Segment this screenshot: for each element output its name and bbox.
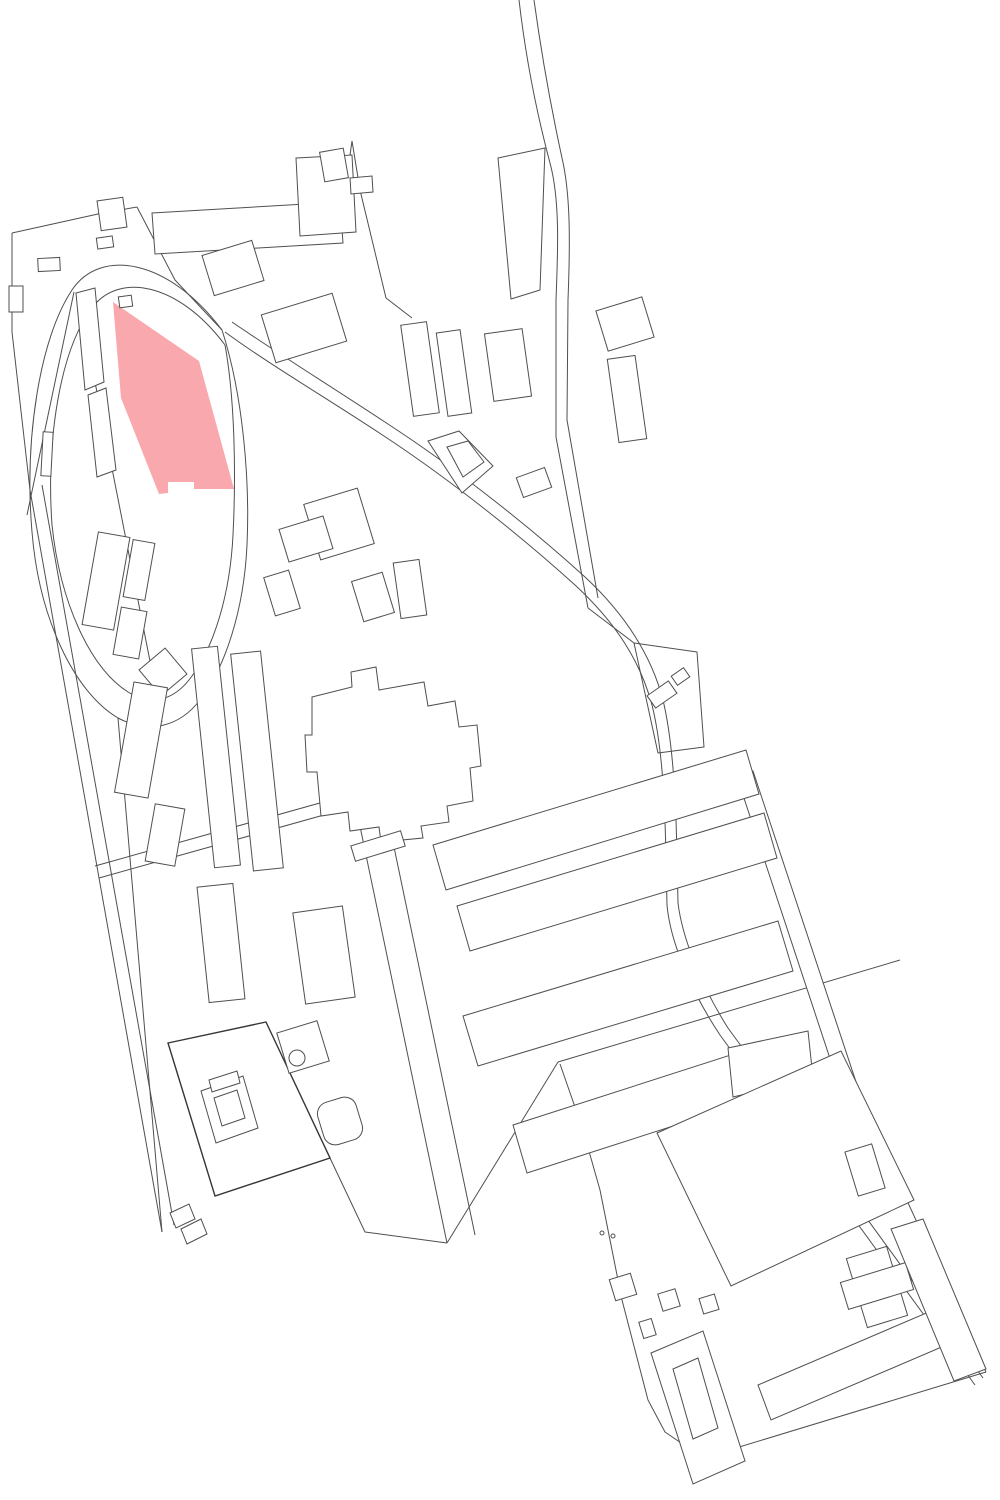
building-topcenter-slab-2 xyxy=(436,330,471,417)
building-se-square-1 xyxy=(609,1273,636,1300)
boundary-top-left-drop xyxy=(12,233,30,490)
building-topcenter-slab-1 xyxy=(401,322,440,417)
building-leftcol-4 xyxy=(115,682,168,798)
road-main-diagonal-west-edge xyxy=(225,332,975,1385)
building-central-blob xyxy=(305,667,481,842)
parcel-trapezoid-top-center xyxy=(498,148,545,299)
building-topcenter-block xyxy=(484,329,531,402)
building-se-square-4 xyxy=(639,1318,656,1338)
highlighted-parcel xyxy=(113,302,234,494)
building-topcenter-small xyxy=(320,148,349,182)
building-central-tail xyxy=(351,831,405,862)
building-midcol-slab-2 xyxy=(231,651,284,871)
building-topleft-small-3 xyxy=(9,286,23,312)
building-courtyard-circle xyxy=(289,1050,305,1066)
building-loop-strip-2 xyxy=(88,388,116,477)
building-topleft-arm xyxy=(350,176,373,194)
map-dot-2 xyxy=(611,1234,615,1238)
parcel-line-top-center-step xyxy=(352,141,412,318)
building-mid-small-2 xyxy=(393,559,427,618)
building-eastmid-stepped xyxy=(596,297,654,351)
building-eastmid-slab xyxy=(607,355,646,442)
site-plan-svg xyxy=(0,0,1000,1500)
building-roadside-small xyxy=(516,468,551,498)
building-bl-upper-2 xyxy=(293,906,355,1004)
building-loop-strip-1 xyxy=(76,288,104,390)
map-dot-1 xyxy=(600,1231,604,1235)
building-topleft-small-4 xyxy=(118,295,132,308)
road-top-curve-east-edge xyxy=(534,0,598,598)
building-topleft-small-2 xyxy=(38,257,61,271)
building-topleft-notched xyxy=(97,197,127,230)
building-bl-upper-1 xyxy=(197,883,245,1002)
building-leftcol-5 xyxy=(145,804,185,866)
building-mid-small-1 xyxy=(264,570,301,616)
building-leftcol-3 xyxy=(113,607,147,659)
building-eastparcel-small-2 xyxy=(671,668,690,686)
building-mid-small-3 xyxy=(352,572,395,622)
building-loop-north-2 xyxy=(261,293,346,362)
building-se-long-slab xyxy=(758,1311,944,1420)
building-se-square-3 xyxy=(699,1294,719,1314)
road-top-curve-west-edge xyxy=(519,0,588,608)
site-plan-map xyxy=(0,0,1000,1500)
building-loop-strip-3 xyxy=(41,432,53,476)
building-se-square-2 xyxy=(658,1289,680,1311)
building-topleft-small-1 xyxy=(96,236,113,249)
road-fan-link-east xyxy=(588,608,634,643)
